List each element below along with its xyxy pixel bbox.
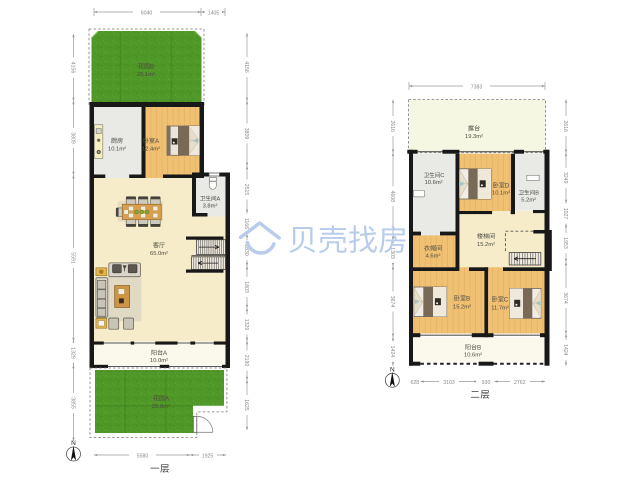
svg-text:B: B [535, 191, 539, 197]
svg-text:1625: 1625 [243, 399, 249, 411]
svg-text:1027: 1027 [562, 208, 568, 220]
svg-text:3.8m²: 3.8m² [203, 203, 218, 209]
svg-text:A: A [217, 196, 221, 202]
svg-text:15.2m²: 15.2m² [477, 242, 495, 248]
svg-text:65.0m²: 65.0m² [150, 251, 168, 257]
svg-text:4156: 4156 [70, 62, 76, 74]
svg-text:4.6m²: 4.6m² [426, 254, 441, 260]
svg-text:3855: 3855 [70, 397, 76, 409]
svg-text:3809: 3809 [70, 132, 76, 144]
svg-text:1803: 1803 [243, 281, 249, 293]
svg-text:25.8m²: 25.8m² [152, 404, 170, 410]
svg-text:5.2m²: 5.2m² [521, 198, 536, 204]
svg-text:4156: 4156 [243, 61, 249, 73]
svg-text:7383: 7383 [471, 84, 483, 90]
svg-text:1424: 1424 [562, 344, 568, 356]
svg-text:2515: 2515 [243, 184, 249, 196]
svg-text:6040: 6040 [141, 10, 153, 16]
svg-text:D: D [505, 182, 510, 189]
svg-text:2190: 2190 [243, 355, 249, 367]
svg-text:N: N [390, 367, 395, 374]
svg-text:1329: 1329 [70, 347, 76, 359]
svg-text:3103: 3103 [443, 380, 455, 386]
svg-text:3249: 3249 [562, 172, 568, 184]
svg-text:3674: 3674 [389, 296, 395, 308]
svg-text:19.3m²: 19.3m² [465, 134, 483, 140]
svg-text:10.1m²: 10.1m² [108, 147, 126, 153]
svg-text:1405: 1405 [208, 10, 220, 16]
svg-text:5580: 5580 [137, 453, 149, 459]
svg-text:10.6m²: 10.6m² [425, 180, 443, 186]
svg-text:N: N [71, 440, 76, 447]
svg-text:B: B [466, 295, 470, 302]
svg-text:C: C [504, 296, 509, 303]
svg-text:10.0m²: 10.0m² [150, 358, 168, 364]
svg-text:1166: 1166 [243, 218, 249, 229]
svg-text:C: C [440, 173, 444, 179]
svg-text:10.6m²: 10.6m² [464, 353, 482, 359]
svg-text:B: B [477, 344, 481, 351]
svg-text:1424: 1424 [389, 346, 395, 358]
svg-text:1329: 1329 [243, 319, 249, 331]
svg-text:11.7m²: 11.7m² [491, 306, 509, 312]
svg-text:25.1m²: 25.1m² [137, 72, 155, 78]
svg-text:1953: 1953 [562, 237, 568, 249]
svg-text:15.2m²: 15.2m² [453, 305, 471, 311]
svg-text:B: B [150, 63, 154, 70]
svg-text:2762: 2762 [514, 380, 526, 386]
svg-text:628: 628 [410, 380, 419, 386]
svg-text:3674: 3674 [562, 292, 568, 304]
svg-text:12.4m²: 12.4m² [142, 147, 160, 153]
svg-text:4608: 4608 [389, 191, 395, 203]
svg-text:2616: 2616 [562, 120, 568, 132]
svg-text:3809: 3809 [243, 128, 249, 140]
svg-text:2616: 2616 [389, 120, 395, 132]
svg-text:10.1m²: 10.1m² [492, 191, 510, 197]
svg-text:930: 930 [482, 380, 491, 386]
svg-text:5591: 5591 [70, 252, 76, 264]
svg-text:1925: 1925 [202, 453, 214, 459]
